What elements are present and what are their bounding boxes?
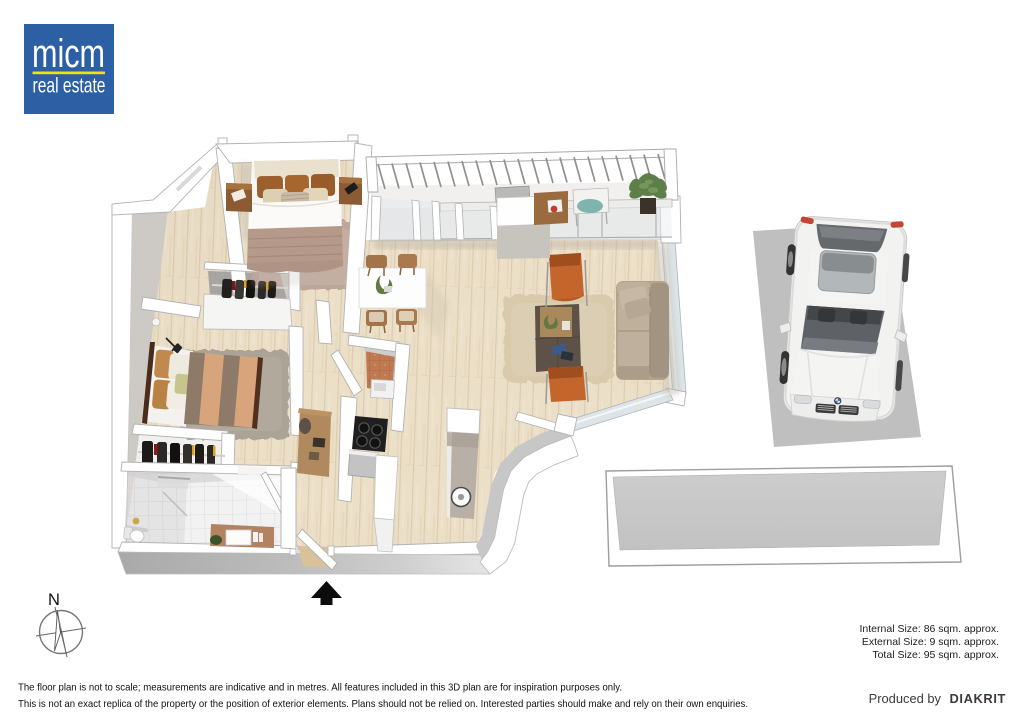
svg-text:Total Size: 95 sqm. approx.: Total Size: 95 sqm. approx.: [872, 649, 999, 661]
svg-text:External Size: 9 sqm. approx.: External Size: 9 sqm. approx.: [862, 636, 999, 648]
svg-text:Internal Size: 86 sqm. approx.: Internal Size: 86 sqm. approx.: [860, 623, 1000, 635]
svg-text:This is not an exact replica o: This is not an exact replica of the prop…: [18, 699, 748, 710]
svg-text:The floor plan is not to scale: The floor plan is not to scale; measurem…: [18, 683, 622, 694]
svg-text:Produced by: Produced by: [869, 691, 942, 706]
svg-text:real estate: real estate: [33, 75, 106, 98]
svg-text:micm: micm: [32, 32, 105, 76]
svg-text:N: N: [48, 591, 60, 609]
svg-text:DIAKRIT: DIAKRIT: [950, 691, 1006, 706]
